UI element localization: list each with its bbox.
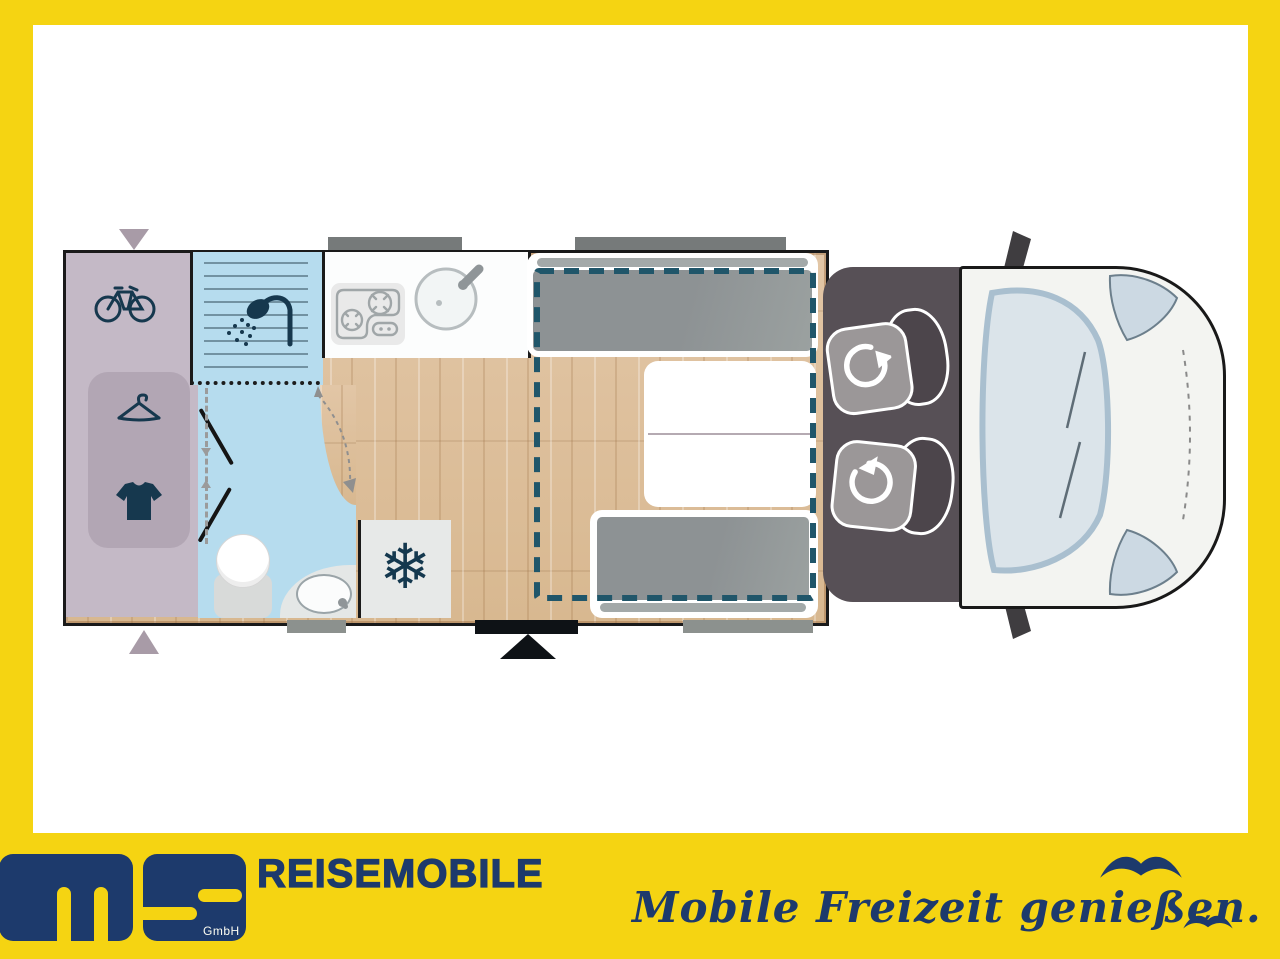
swivel-seat-passenger [828,426,958,543]
footer-branding: GmbH REISEMOBILE Mobile Freizeit genieße… [0,833,1280,959]
bicycle-icon [94,278,156,324]
logo-letter-m [0,854,133,941]
slide-arrow-up [201,480,211,488]
yellow-frame: ❄ [0,0,1280,959]
entrance-arrow [500,634,556,659]
wordmark: REISEMOBILE [257,852,544,897]
marker-arrow-top [119,229,149,250]
logo-m-slot [94,887,108,941]
tagline: Mobile Freizeit genießen. [632,883,1262,932]
logo-s-slot-upper [198,889,242,902]
logo-s-slot-lower [143,907,197,920]
headlight-bottom [1110,530,1177,595]
stove-icon [331,283,405,345]
swivel-seat-driver [821,302,954,423]
entrance-door-bar [475,620,578,634]
rotation-arrow-icon [843,453,900,510]
tshirt-icon [116,482,162,522]
floorplan: ❄ [0,0,1280,830]
slide-arrow-down [201,448,211,456]
hood-line [1183,350,1190,520]
bird-icon-large [1098,846,1184,888]
door-swing-arc [300,385,370,500]
shower-icon [218,282,318,362]
rotation-arrow-icon [837,336,896,395]
marker-arrow-bottom [129,630,159,654]
window-bar-bottom-washroom [287,620,346,633]
window-bar-top-kitchen [328,237,462,250]
mirror-top-icon [1004,231,1031,268]
logo-m-slot [57,887,71,941]
van-front-details [963,270,1213,600]
drop-down-bed-outline [531,265,819,605]
logo-letter-s: GmbH [143,854,246,941]
hanger-icon [115,390,163,424]
washbasin-icon [296,574,352,614]
toilet-icon [216,534,270,588]
sliding-door-track [205,388,208,544]
kitchen-sink-icon [413,262,485,336]
window-bar-top-dinette [575,237,786,250]
snowflake-icon: ❄ [370,532,440,602]
logo-gmbh-text: GmbH [203,924,240,938]
bird-icon-small [1182,909,1234,935]
washbasin-faucet [338,598,347,607]
window-bar-bottom-dinette [683,620,813,633]
headlight-top [1110,275,1177,340]
windshield [982,291,1108,571]
